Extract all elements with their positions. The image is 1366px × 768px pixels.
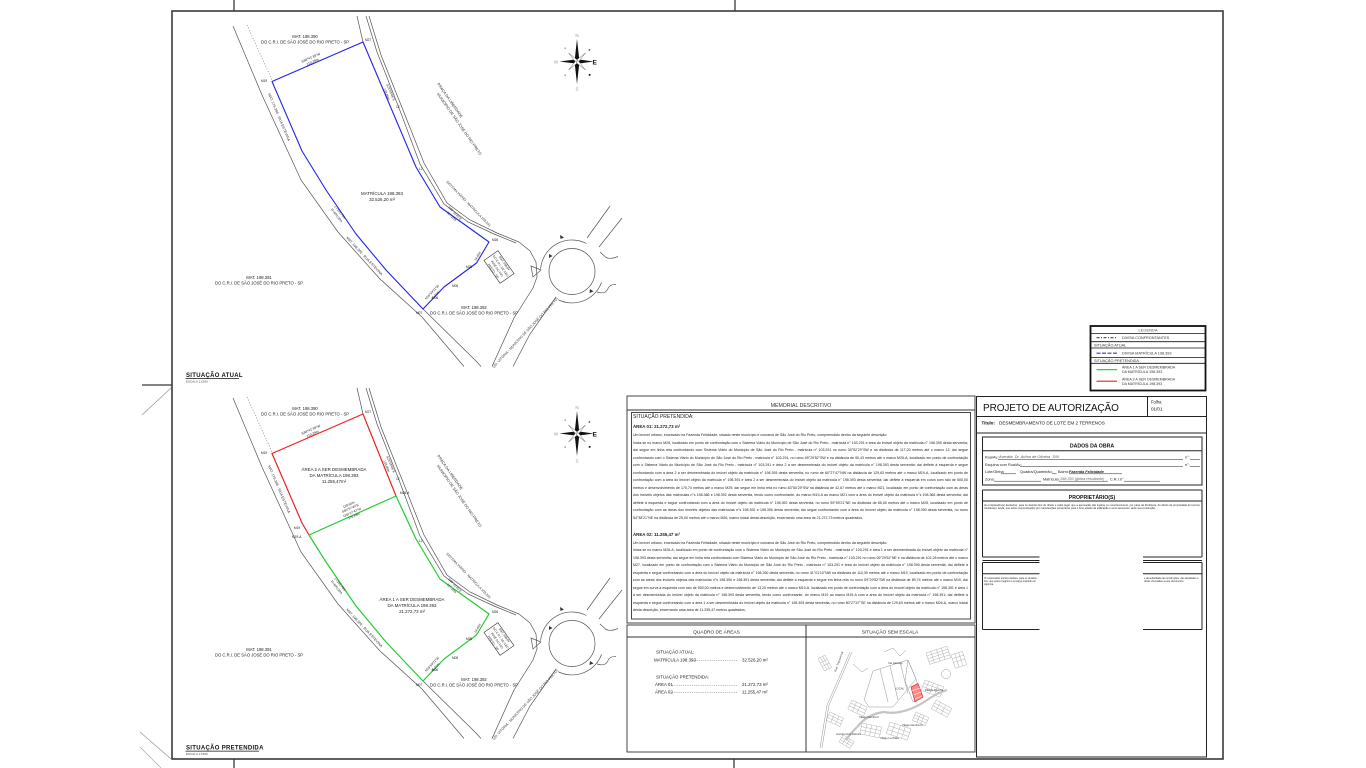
svg-text:32.526,20 m²: 32.526,20 m²: [742, 658, 768, 663]
svg-text:SITUAÇÃO PRETENDIDA:: SITUAÇÃO PRETENDIDA:: [656, 675, 709, 680]
svg-text:ÁREA 2 A SER DESMEMBRADA: ÁREA 2 A SER DESMEMBRADA: [1122, 377, 1176, 381]
svg-text:Vilage Damha III: Vilage Damha III: [902, 723, 923, 727]
svg-text:n°: n°: [1120, 477, 1124, 481]
svg-text:SITUAÇÃO ATUAL: SITUAÇÃO ATUAL: [1094, 343, 1126, 348]
svg-text:ESCALA 1:1500: ESCALA 1:1500: [186, 752, 208, 756]
svg-text:n°:: n°:: [1185, 456, 1190, 460]
svg-text:Zona:: Zona:: [985, 477, 995, 481]
svg-text:Avenida Dr. Arthur de Oliveir: Avenida Dr. Arthur de Oliveira S/N: [998, 455, 1059, 459]
svg-text:Vilage La Plata: Vilage La Plata: [880, 736, 899, 740]
svg-text:SITUAÇÃO ATUAL: SITUAÇÃO ATUAL: [186, 372, 243, 379]
svg-text:n°:: n°:: [1185, 463, 1190, 467]
svg-text:MEMORIAL DESCRITIVO: MEMORIAL DESCRITIVO: [771, 403, 832, 409]
svg-text:ÁREA 1 A SER DESMEMBRADA: ÁREA 1 A SER DESMEMBRADA: [1122, 366, 1176, 370]
svg-text:ESCALA 1:1500: ESCALA 1:1500: [186, 380, 208, 384]
svg-text:Fazenda Felicidade: Fazenda Felicidade: [1069, 470, 1104, 474]
svg-text:SITUAÇÃO PRETENDIDA: SITUAÇÃO PRETENDIDA: [186, 745, 264, 752]
svg-text:ÁREA 01: ÁREA 01: [655, 682, 673, 687]
svg-text:SITUAÇÃO PRETENDIDA: SITUAÇÃO PRETENDIDA: [1094, 358, 1139, 363]
svg-text:Lote/Gleba: Lote/Gleba: [985, 470, 1004, 474]
svg-text:11.255,47 m²: 11.255,47 m²: [742, 690, 768, 695]
svg-text:Esquina com Rua/Av.:: Esquina com Rua/Av.:: [985, 463, 1022, 467]
svg-text:Folha: Folha: [1151, 400, 1162, 405]
svg-text:Via Hartwig: Via Hartwig: [888, 661, 903, 665]
svg-text:Vilage Damha II: Vilage Damha II: [859, 715, 879, 719]
svg-text:Quadra/Quarteirão:: Quadra/Quarteirão:: [1020, 470, 1053, 474]
svg-text:Village Damha: Village Damha: [925, 688, 944, 692]
svg-text:198.393 (gleba resultante): 198.393 (gleba resultante): [1060, 477, 1105, 481]
svg-text:Matrícula:: Matrícula:: [1043, 477, 1060, 481]
svg-text:21.272,73 m²: 21.272,73 m²: [742, 682, 768, 687]
svg-text:LEGENDA: LEGENDA: [1138, 328, 1157, 333]
svg-text:DA MATRÍCULA 198.393: DA MATRÍCULA 198.393: [1122, 382, 1162, 386]
svg-text:PROPRIETÁRIO(S): PROPRIETÁRIO(S): [1069, 494, 1116, 501]
svg-text:ÁREA 02: ÁREA 02: [655, 690, 673, 695]
svg-text:SITUAÇÃO SEM ESCALA: SITUAÇÃO SEM ESCALA: [862, 629, 919, 636]
svg-text:Rua/Av.:: Rua/Av.:: [985, 456, 999, 460]
svg-text:DA MATRÍCULA 198.393: DA MATRÍCULA 198.393: [1122, 370, 1162, 374]
svg-text:DESMEMBRAMENTO DE LOTE EM 2 TE: DESMEMBRAMENTO DE LOTE EM 2 TERRENOS: [999, 421, 1105, 426]
svg-text:01/01: 01/01: [1151, 407, 1163, 412]
svg-text:DIVISA MATRÍCULA 198.393: DIVISA MATRÍCULA 198.393: [1122, 352, 1172, 356]
svg-text:MATRÍCULA 198.393: MATRÍCULA 198.393: [654, 658, 696, 663]
svg-text:PROJETO DE AUTORIZAÇÃO: PROJETO DE AUTORIZAÇÃO: [983, 401, 1119, 414]
svg-text:DIVISA CONFRONTANTES: DIVISA CONFRONTANTES: [1122, 336, 1170, 340]
svg-text:Bairro:: Bairro:: [1058, 470, 1069, 474]
svg-text:Título:: Título:: [982, 421, 996, 426]
svg-text:SITUAÇÃO ATUAL:: SITUAÇÃO ATUAL:: [656, 650, 694, 655]
svg-text:QUADRO DE ÁREAS: QUADRO DE ÁREAS: [693, 629, 740, 636]
svg-text:LOCAL: LOCAL: [895, 687, 905, 691]
svg-text:Condomínio Debora: Condomínio Debora: [836, 732, 861, 736]
svg-text:DADOS DA OBRA: DADOS DA OBRA: [1070, 444, 1114, 450]
